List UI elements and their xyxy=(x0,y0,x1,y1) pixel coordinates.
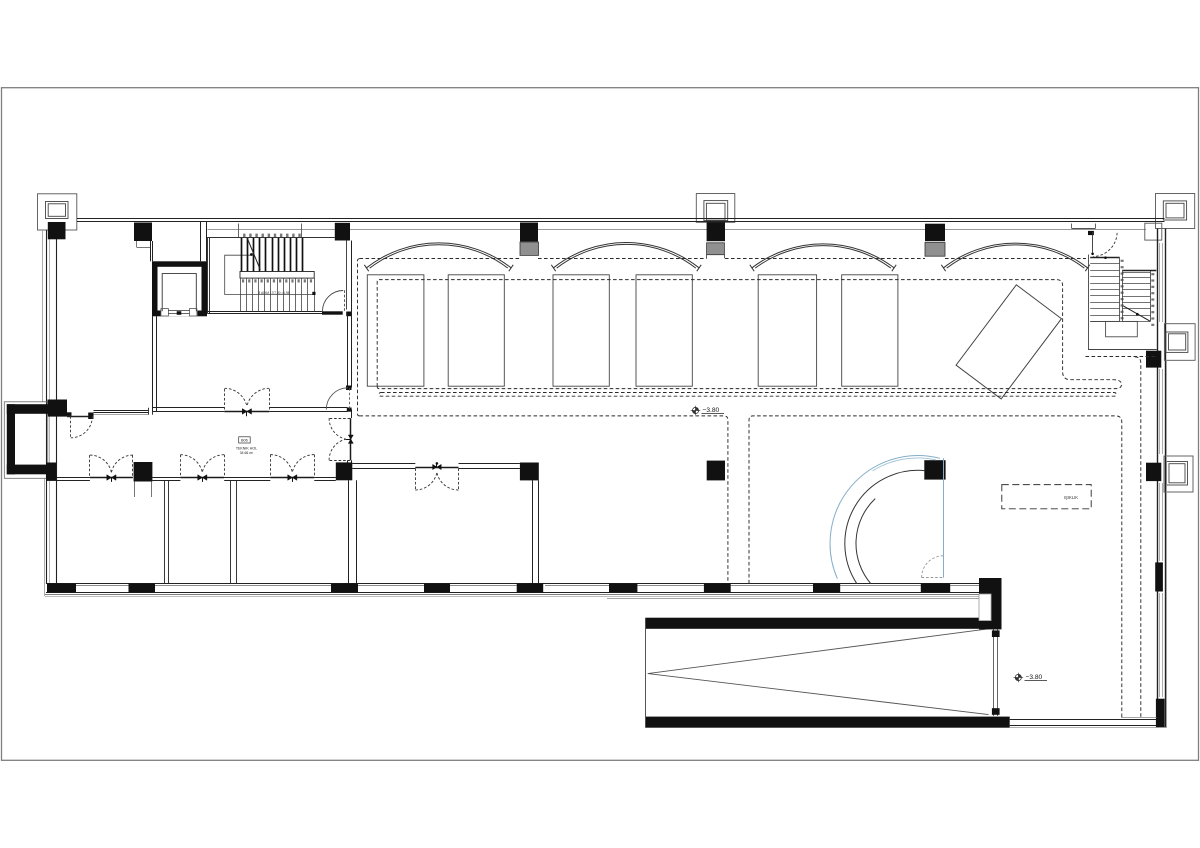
svg-text:−3.80: −3.80 xyxy=(703,407,720,414)
svg-text:IŞIKLIK: IŞIKLIK xyxy=(1064,495,1078,500)
svg-text:TEKNIK HOL: TEKNIK HOL xyxy=(236,446,257,450)
svg-text:B06: B06 xyxy=(241,439,248,443)
svg-text:34.66 m²: 34.66 m² xyxy=(240,451,254,455)
svg-text:8 ADIM 17/7.30 =1.98: 8 ADIM 17/7.30 =1.98 xyxy=(259,291,290,295)
svg-text:−3.80: −3.80 xyxy=(1026,674,1043,681)
